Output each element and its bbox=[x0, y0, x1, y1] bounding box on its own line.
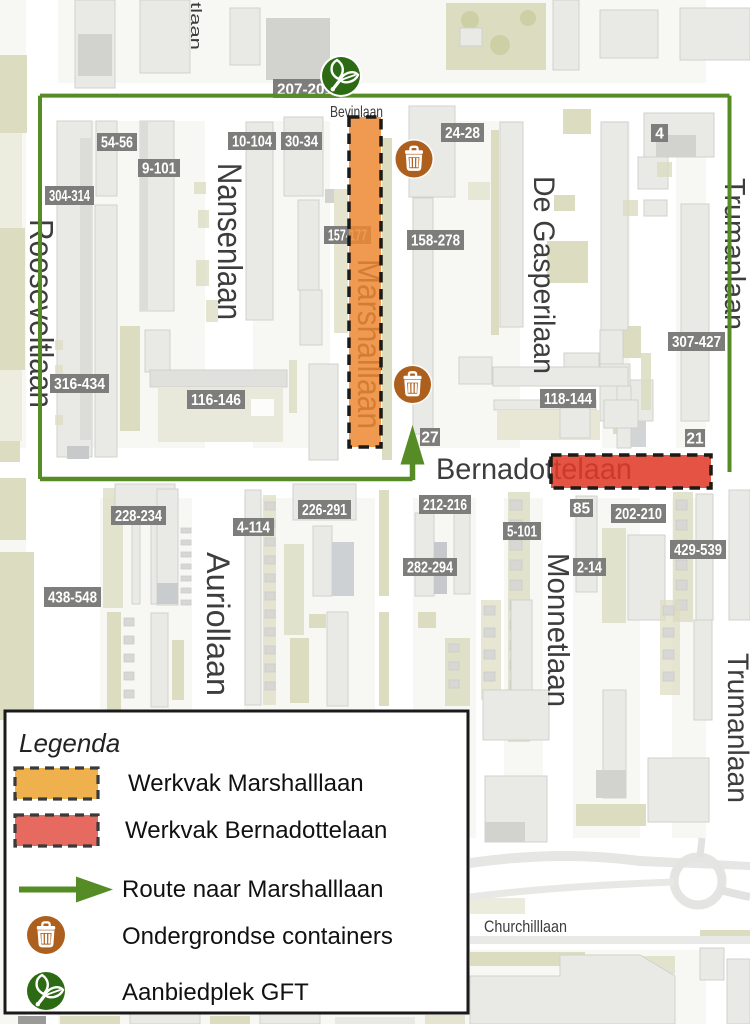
svg-text:226-291: 226-291 bbox=[302, 502, 347, 519]
svg-text:21: 21 bbox=[686, 431, 704, 448]
svg-text:429-539: 429-539 bbox=[674, 542, 722, 559]
svg-text:Monnetlaan: Monnetlaan bbox=[541, 553, 576, 707]
svg-text:212-216: 212-216 bbox=[423, 497, 467, 514]
svg-text:tlaan: tlaan bbox=[187, 2, 204, 50]
svg-text:10-104: 10-104 bbox=[232, 134, 272, 151]
svg-text:316-434: 316-434 bbox=[54, 376, 105, 393]
svg-text:158-278: 158-278 bbox=[411, 233, 460, 250]
svg-text:2-14: 2-14 bbox=[577, 560, 602, 577]
svg-text:304-314: 304-314 bbox=[49, 188, 90, 205]
svg-text:Nansenlaan: Nansenlaan bbox=[210, 163, 248, 320]
svg-text:282-294: 282-294 bbox=[407, 560, 453, 577]
svg-text:Trumanlaan: Trumanlaan bbox=[718, 178, 750, 330]
svg-text:5-101: 5-101 bbox=[507, 524, 537, 541]
svg-text:202-210: 202-210 bbox=[615, 506, 662, 523]
svg-text:228-234: 228-234 bbox=[115, 508, 162, 525]
svg-text:Legenda: Legenda bbox=[19, 728, 120, 758]
svg-text:27: 27 bbox=[421, 430, 438, 447]
svg-text:Aanbiedplek GFT: Aanbiedplek GFT bbox=[122, 979, 309, 1006]
svg-text:116-146: 116-146 bbox=[191, 392, 241, 409]
svg-text:24-28: 24-28 bbox=[445, 125, 480, 142]
svg-text:Route naar Marshalllaan: Route naar Marshalllaan bbox=[122, 876, 383, 903]
svg-text:9-101: 9-101 bbox=[142, 161, 176, 178]
svg-text:30-34: 30-34 bbox=[285, 134, 318, 151]
svg-text:Werkvak Bernadottelaan: Werkvak Bernadottelaan bbox=[125, 817, 387, 844]
svg-text:Werkvak Marshalllaan: Werkvak Marshalllaan bbox=[128, 770, 364, 797]
svg-text:Ondergrondse containers: Ondergrondse containers bbox=[122, 923, 393, 950]
svg-text:4-114: 4-114 bbox=[237, 520, 270, 537]
svg-text:438-548: 438-548 bbox=[48, 590, 97, 607]
svg-text:Churchilllaan: Churchilllaan bbox=[484, 918, 567, 936]
svg-text:118-144: 118-144 bbox=[544, 391, 592, 408]
svg-text:De Gasperilaan: De Gasperilaan bbox=[527, 176, 560, 374]
svg-text:307-427: 307-427 bbox=[672, 334, 721, 351]
svg-text:85: 85 bbox=[573, 501, 591, 518]
svg-text:Auriollaan: Auriollaan bbox=[200, 552, 236, 696]
svg-text:54-56: 54-56 bbox=[101, 135, 133, 152]
svg-text:Trumanlaan: Trumanlaan bbox=[721, 653, 750, 803]
svg-text:4: 4 bbox=[655, 126, 664, 143]
